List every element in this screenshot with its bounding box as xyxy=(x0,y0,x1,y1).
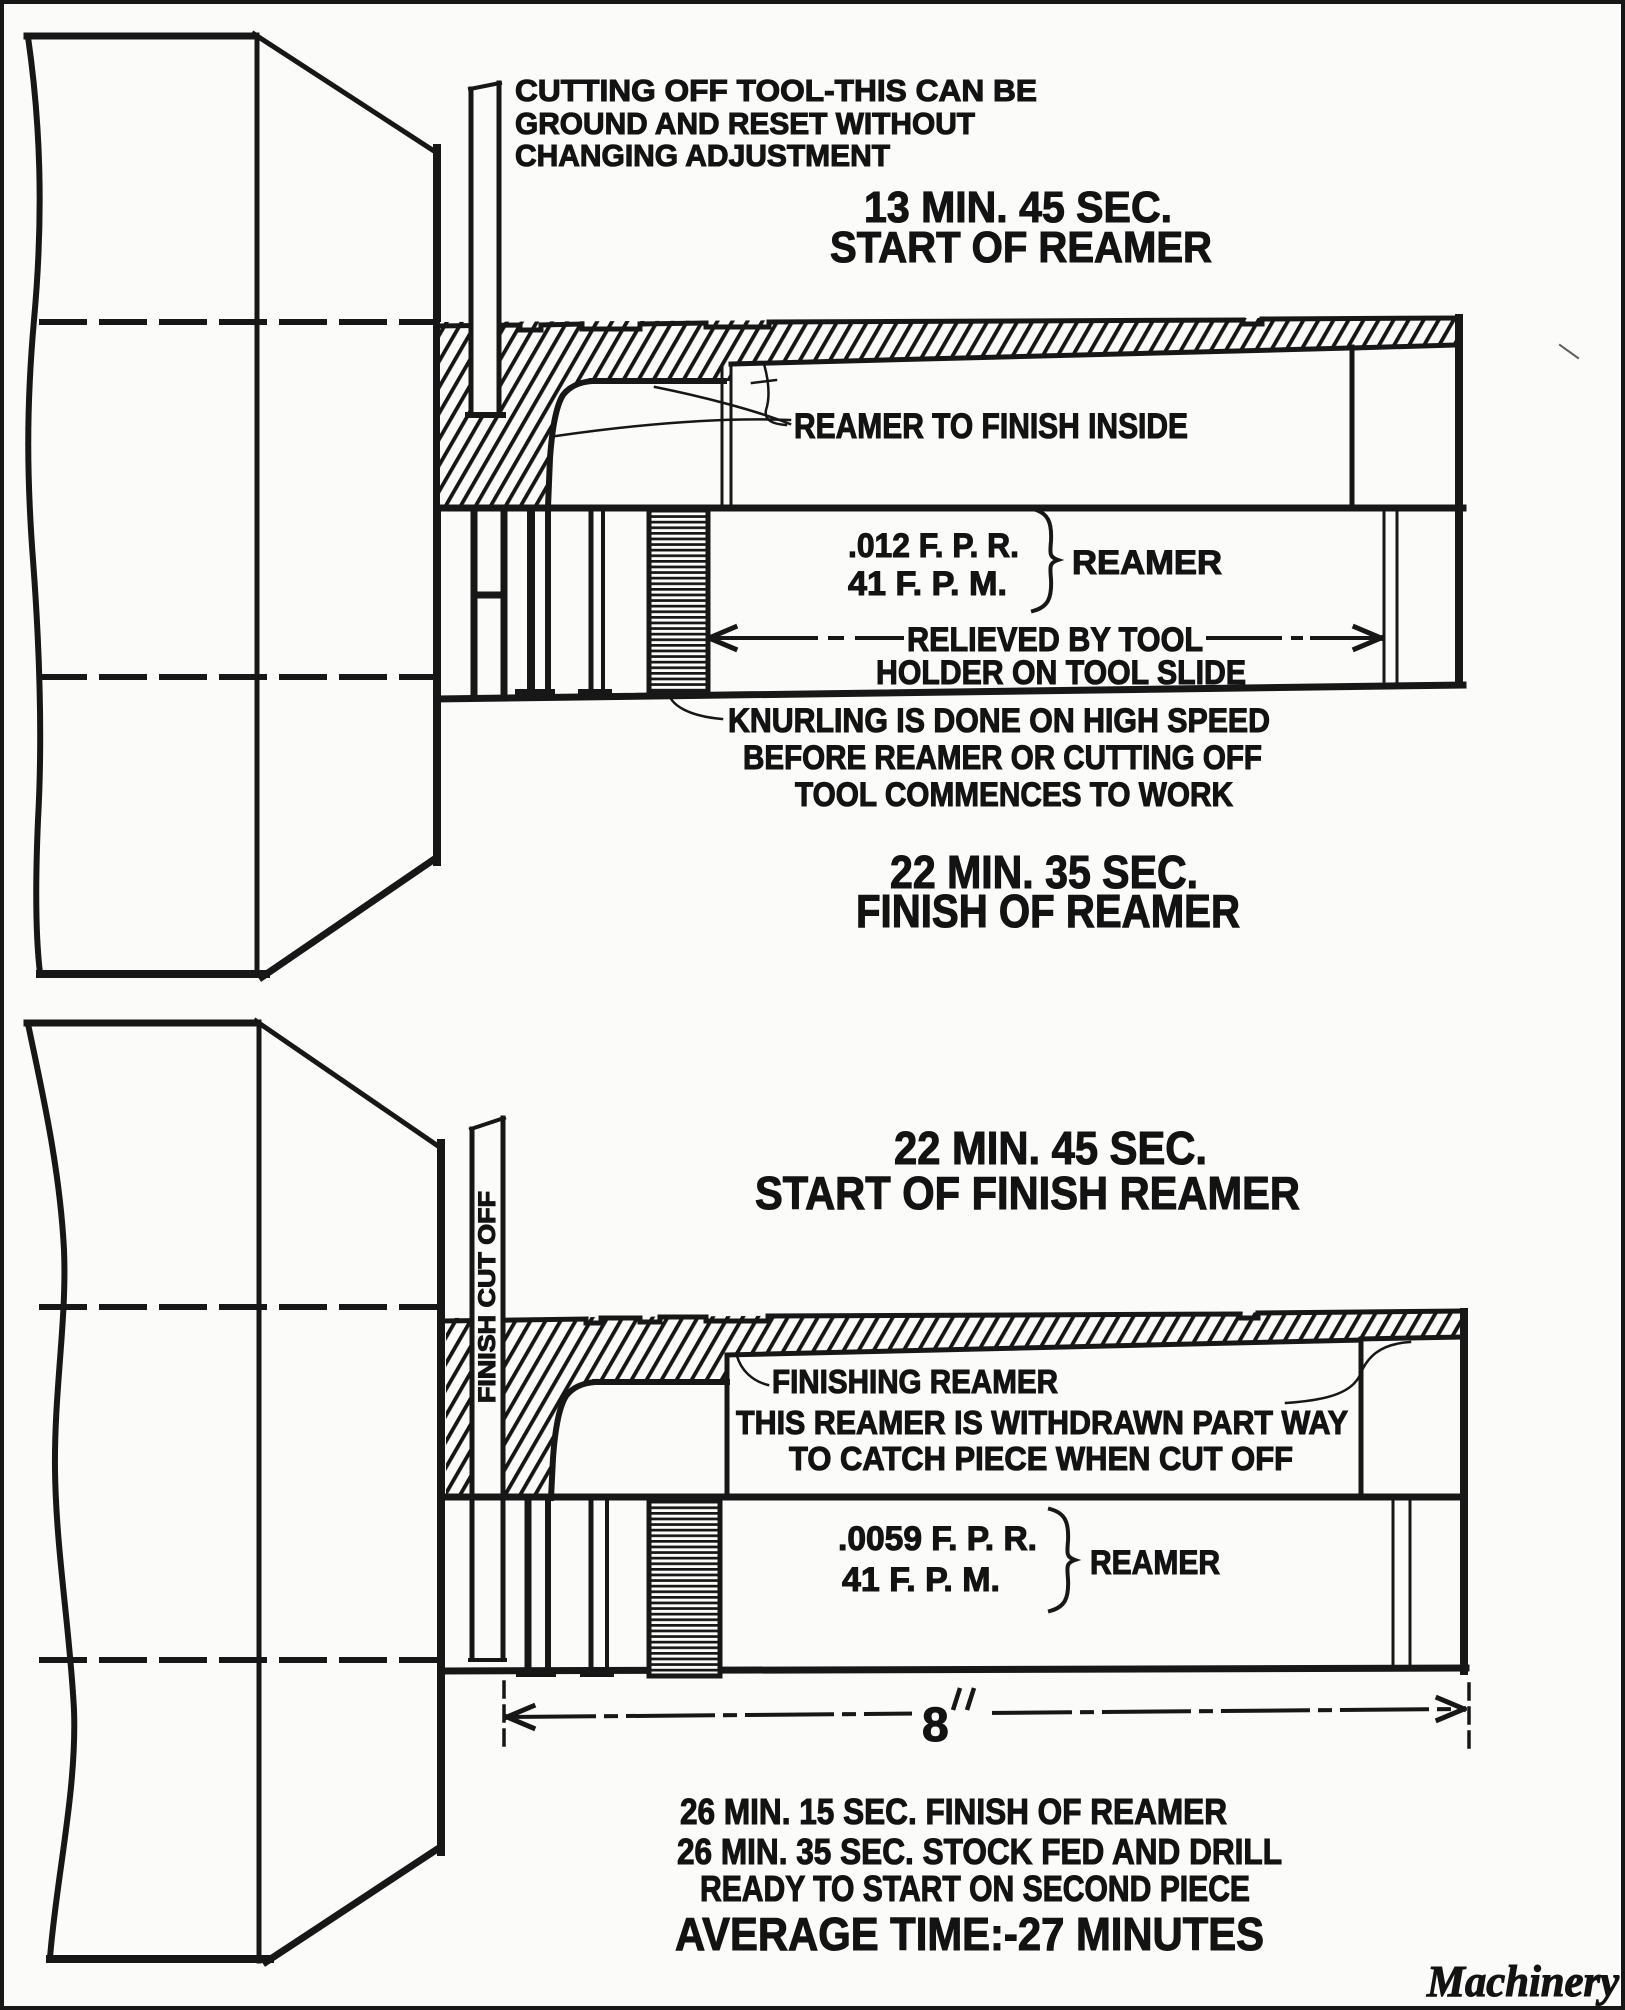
svg-text:TOOL COMMENCES TO WORK: TOOL COMMENCES TO WORK xyxy=(795,776,1233,814)
svg-text:26 MIN. 35 SEC. STOCK FED AND: 26 MIN. 35 SEC. STOCK FED AND DRILL xyxy=(677,1831,1282,1872)
svg-text:BEFORE REAMER OR CUTTING OFF: BEFORE REAMER OR CUTTING OFF xyxy=(743,739,1262,777)
svg-text:THIS REAMER IS WITHDRAWN PART: THIS REAMER IS WITHDRAWN PART WAY xyxy=(736,1404,1348,1441)
svg-text:TO CATCH PIECE WHEN CUT OFF: TO CATCH PIECE WHEN CUT OFF xyxy=(789,1440,1293,1477)
svg-text:FINISHING REAMER: FINISHING REAMER xyxy=(772,1363,1058,1400)
svg-text:FINISH OF REAMER: FINISH OF REAMER xyxy=(856,885,1240,937)
svg-text:START OF REAMER: START OF REAMER xyxy=(830,223,1212,272)
svg-text:KNURLING IS DONE ON HIGH SPEED: KNURLING IS DONE ON HIGH SPEED xyxy=(728,702,1270,740)
svg-text:26 MIN. 15 SEC. FINISH OF REAM: 26 MIN. 15 SEC. FINISH OF REAMER xyxy=(680,1791,1227,1832)
svg-text:GROUND AND RESET WITHOUT: GROUND AND RESET WITHOUT xyxy=(515,106,975,141)
svg-text:41 F. P. M.: 41 F. P. M. xyxy=(842,1561,1000,1599)
svg-text:REAMER TO FINISH INSIDE: REAMER TO FINISH INSIDE xyxy=(794,407,1188,446)
svg-text:START OF FINISH REAMER: START OF FINISH REAMER xyxy=(755,1167,1300,1219)
svg-text:AVERAGE TIME:-27 MINUTES: AVERAGE TIME:-27 MINUTES xyxy=(675,1908,1264,1960)
svg-text:REAMER: REAMER xyxy=(1090,1544,1220,1582)
svg-text:41 F. P. M.: 41 F. P. M. xyxy=(848,565,1007,603)
svg-text:CHANGING ADJUSTMENT: CHANGING ADJUSTMENT xyxy=(515,138,890,173)
svg-text:.0059 F. P. R.: .0059 F. P. R. xyxy=(838,1520,1037,1558)
svg-text:Machinery: Machinery xyxy=(1426,1957,1619,2006)
svg-text:.012 F. P. R.: .012 F. P. R. xyxy=(848,527,1019,565)
svg-text:HOLDER ON TOOL SLIDE: HOLDER ON TOOL SLIDE xyxy=(876,654,1246,692)
svg-text:CUTTING OFF TOOL-THIS CAN BE: CUTTING OFF TOOL-THIS CAN BE xyxy=(515,73,1037,108)
svg-text:READY TO START ON SECOND PIECE: READY TO START ON SECOND PIECE xyxy=(700,1868,1250,1909)
svg-text:FINISH CUT OFF: FINISH CUT OFF xyxy=(474,1191,501,1403)
svg-text:REAMER: REAMER xyxy=(1072,544,1222,582)
svg-text:8: 8 xyxy=(922,1699,949,1752)
